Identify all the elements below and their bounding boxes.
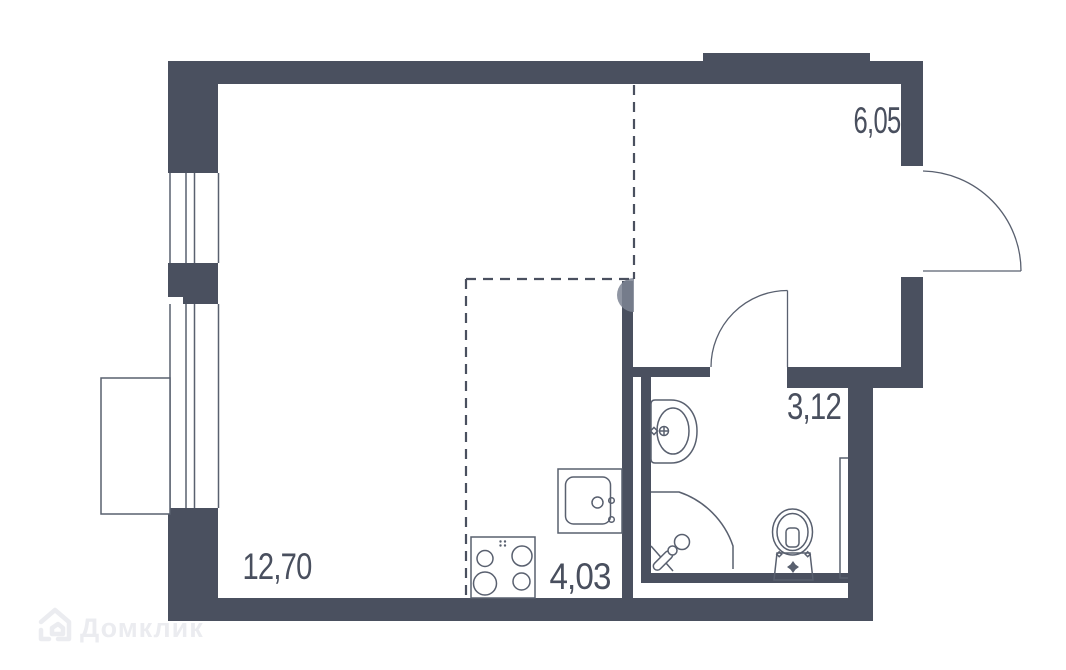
bathroom-right-wall: [848, 385, 873, 598]
floor-plan-drawing: 6,05 12,70 4,03 3,12 Домклик: [0, 0, 1066, 670]
watermark: Домклик: [41, 610, 204, 643]
entry-door: [923, 171, 1021, 271]
top-wall-right: [870, 61, 923, 84]
floor-plan: 6,05 12,70 4,03 3,12 Домклик: [0, 0, 1066, 670]
entry-side-wall: [787, 367, 923, 388]
column-cap: [617, 278, 634, 312]
right-wall-upper: [901, 84, 923, 166]
area-label-living-room: 12,70: [243, 546, 312, 587]
area-label-kitchen-zone: 4,03: [550, 556, 611, 597]
bathroom-left-wall: [641, 377, 651, 583]
domclick-house-icon: [41, 610, 69, 639]
top-wall-raised: [703, 53, 870, 84]
left-wall-top-pillar: [168, 61, 218, 173]
ventilation-duct: [840, 458, 848, 578]
washbasin-icon: [650, 400, 697, 463]
bathroom-door-arc: [711, 291, 788, 368]
interior-wall: [622, 281, 633, 598]
window-lower: [170, 304, 219, 508]
bottom-wall: [168, 598, 873, 621]
window-upper: [170, 173, 219, 263]
kitchen-sink-icon: [558, 469, 622, 533]
stove-icon: [471, 537, 535, 598]
top-wall: [168, 61, 703, 84]
left-wall-pier: [168, 263, 218, 297]
bathroom-door: [711, 291, 788, 368]
left-wall-pier-step: [183, 297, 218, 304]
area-label-bathroom: 3,12: [787, 386, 841, 427]
entry-door-arc: [923, 171, 1021, 271]
bathroom-top-wall: [633, 367, 710, 377]
area-label-hallway: 6,05: [854, 100, 901, 141]
walls: [168, 53, 923, 621]
shower-icon: [651, 492, 733, 572]
watermark-text: Домклик: [80, 613, 204, 643]
balcony: [101, 378, 170, 514]
bathroom-bottom-wall: [641, 573, 848, 583]
toilet-icon: [773, 509, 814, 580]
